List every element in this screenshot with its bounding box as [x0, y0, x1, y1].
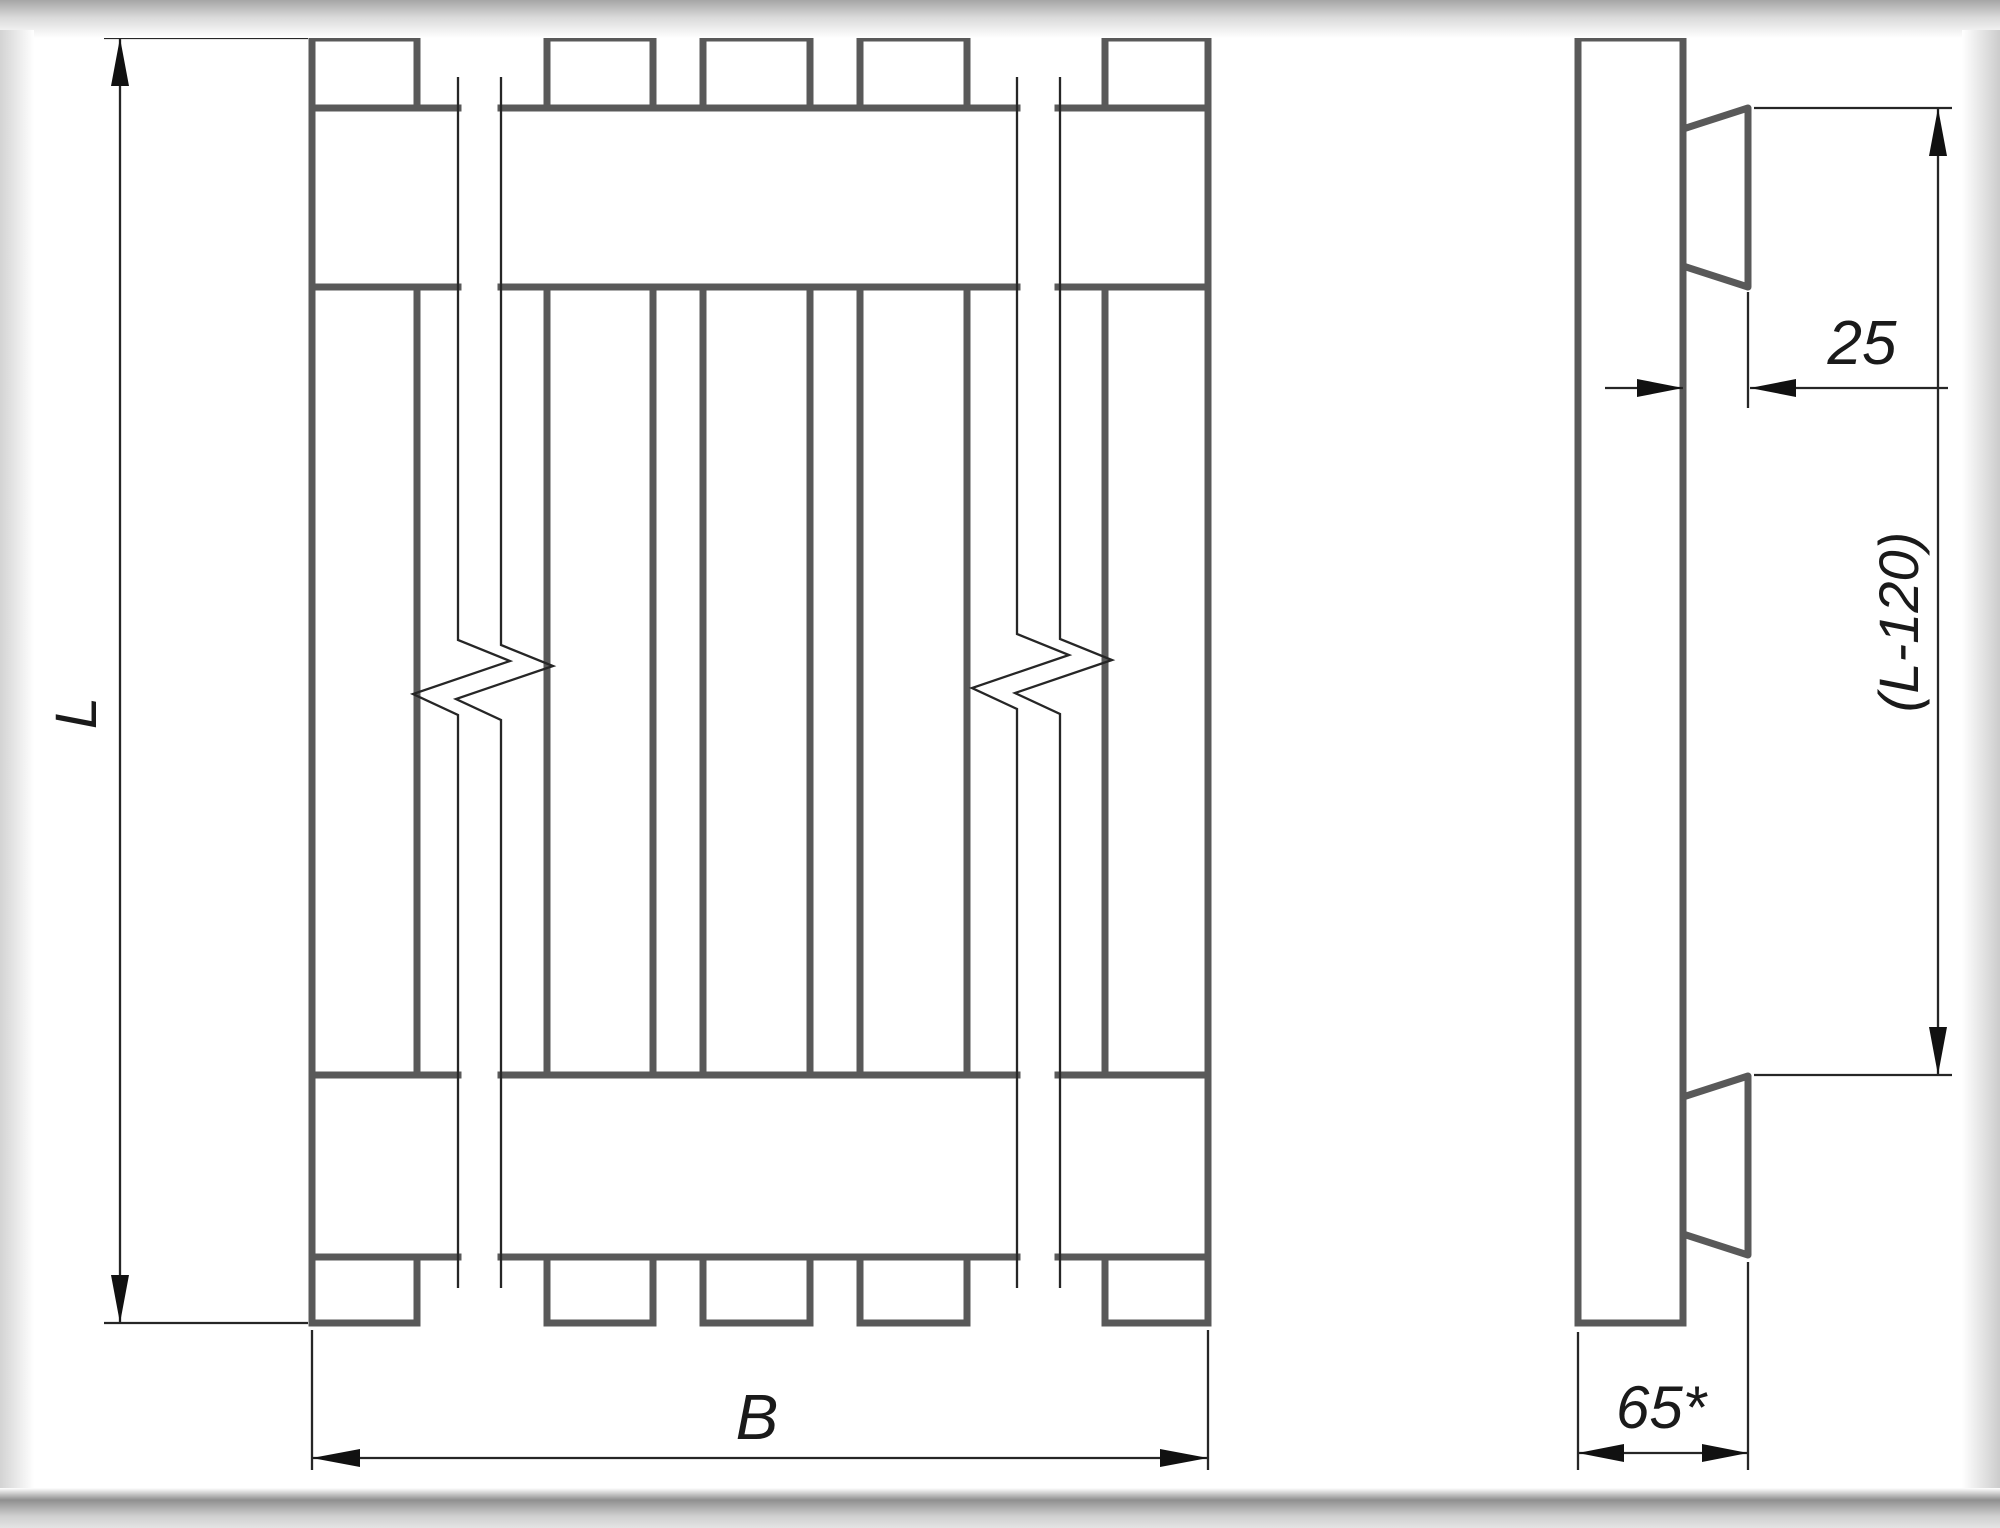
arrowhead-right [1160, 1449, 1208, 1467]
bottom-batten-end [1683, 1076, 1748, 1255]
arrowhead-up [1929, 108, 1947, 156]
side-view [1578, 38, 1748, 1323]
arrowhead-left [1578, 1444, 1624, 1462]
arrowhead-left [312, 1449, 360, 1467]
dim-label-batten-thickness: 25 [1827, 309, 1897, 378]
bottom-batten [312, 1075, 1208, 1257]
side-slat-board [1578, 38, 1683, 1323]
arrowhead-down [1929, 1027, 1947, 1075]
dim-label-batten-span: (L-120) [1867, 532, 1930, 713]
dim-batten-thickness: 25 [1605, 292, 1948, 408]
dim-width: B [312, 1330, 1208, 1470]
front-view-outline [312, 38, 1208, 1323]
arrowhead-down [111, 1275, 129, 1323]
arrowhead-right [1637, 379, 1683, 397]
dim-label-length: L [44, 697, 109, 729]
arrowhead-right [1702, 1444, 1748, 1462]
break-line [972, 77, 1069, 1288]
break-lines [413, 77, 1112, 1288]
technical-drawing: L B 25 [0, 0, 2000, 1528]
dim-label-overall-thickness: 65* [1616, 1374, 1708, 1441]
page-shadow-left [0, 30, 34, 1490]
dim-length: L [44, 38, 308, 1323]
top-batten-end [1683, 108, 1748, 287]
slat-ends [312, 38, 1208, 1323]
page-shadow-top [0, 0, 2000, 38]
break-line [456, 77, 553, 1288]
page-shadow-bottom [0, 1488, 2000, 1528]
break-line [413, 77, 510, 1288]
top-batten [312, 108, 1208, 287]
dim-overall-thickness: 65* [1578, 1262, 1748, 1470]
vertical-slat-edges [417, 38, 1105, 1323]
arrowhead-up [111, 38, 129, 86]
dim-label-width: B [736, 1381, 779, 1453]
dim-batten-span: (L-120) [1754, 108, 1952, 1075]
break-line [1015, 77, 1112, 1288]
scanned-drawing-page: L B 25 [0, 0, 2000, 1528]
page-shadow-right [1962, 30, 2000, 1490]
front-view [312, 38, 1208, 1323]
arrowhead-left [1750, 379, 1796, 397]
